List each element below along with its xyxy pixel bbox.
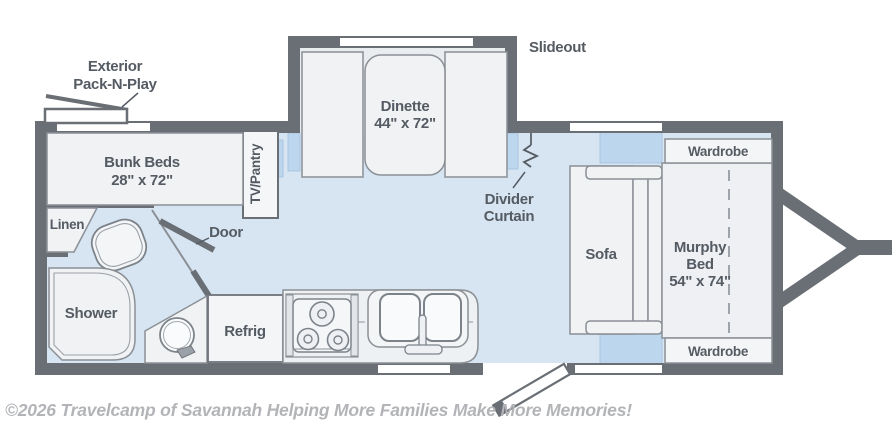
burner [310, 302, 334, 326]
divider-curtain-label-2: Curtain [484, 208, 535, 225]
slideout-left-step [288, 133, 300, 171]
divider-curtain-label-1: Divider [485, 191, 534, 208]
stove [286, 294, 358, 357]
wardrobe-top-label: Wardrobe [688, 144, 749, 159]
floorplan-image: Exterior Pack-N-Play Slideout Dinette 44… [0, 0, 892, 426]
kitchen-sink [368, 290, 468, 354]
rv-floorplan-diagram: Exterior Pack-N-Play Slideout Dinette 44… [0, 0, 892, 426]
bunk-beds-label: Bunk Beds [104, 154, 180, 171]
murphy-bed-label-1: Murphy [674, 239, 727, 256]
bath-door-label: Door [209, 224, 243, 241]
burner [328, 330, 349, 351]
murphy-bed: Murphy Bed 54" x 74" [662, 163, 772, 338]
sofa: Sofa [570, 166, 662, 334]
wardrobe-bottom-label: Wardrobe [688, 344, 749, 359]
exterior-pack-n-play: Exterior Pack-N-Play [45, 58, 158, 123]
linen-label: Linen [50, 217, 85, 232]
dinette-bench-right [445, 52, 507, 177]
bunk-beds-dims: 28" x 72" [111, 172, 173, 189]
tv-pantry-cabinet: TV/Pantry [243, 131, 278, 218]
dinette-dims: 44" x 72" [374, 115, 436, 132]
trailer-hitch [779, 194, 892, 302]
refrigerator-label: Refrig [224, 323, 266, 340]
slideout-right-step [507, 133, 518, 169]
wardrobe-bottom: Wardrobe [665, 338, 772, 363]
pack-n-play-label-2: Pack-N-Play [73, 76, 157, 93]
dinette-bench-left [302, 52, 363, 177]
watermark: ©2026 Travelcamp of Savannah Helping Mor… [5, 400, 632, 420]
wardrobe-top: Wardrobe [665, 139, 772, 163]
shower-label: Shower [65, 305, 118, 322]
dinette-label: Dinette [381, 98, 430, 115]
burner [298, 329, 319, 350]
bunk-beds: Bunk Beds 28" x 72" [47, 133, 243, 205]
front-window-seat [600, 131, 662, 163]
refrigerator: Refrig [208, 295, 283, 362]
pack-n-play-label-1: Exterior [88, 58, 143, 75]
murphy-bed-label-2: Bed [686, 256, 714, 273]
tv-pantry-label: TV/Pantry [248, 143, 263, 204]
shower: Shower [49, 268, 135, 360]
slideout-label: Slideout [529, 39, 586, 56]
dinette: Dinette 44" x 72" [302, 52, 507, 177]
sofa-label: Sofa [585, 246, 617, 263]
entry-step [600, 333, 662, 364]
murphy-bed-dims: 54" x 74" [669, 273, 731, 290]
